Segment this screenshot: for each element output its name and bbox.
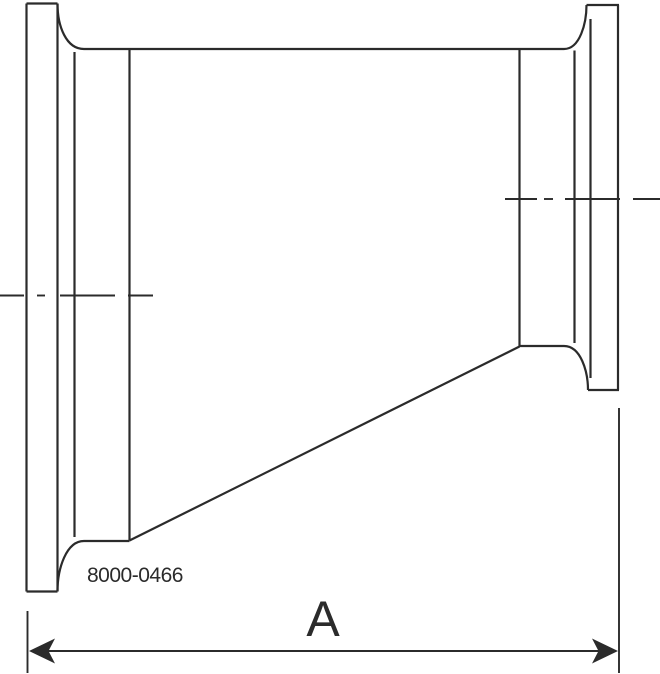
top-left-fillet <box>58 4 85 50</box>
port-centerlines <box>0 199 660 296</box>
part-number-label: 8000-0466 <box>87 564 183 587</box>
bottom-right-fillet <box>564 346 588 390</box>
cone-bottom-taper <box>130 347 520 541</box>
drawing-sheet: 8000-0466 A <box>0 0 660 674</box>
dimension-a-label: A <box>306 591 340 647</box>
top-right-fillet <box>564 5 587 49</box>
reducer-outline <box>27 4 620 592</box>
reducer-technical-drawing: 8000-0466 A <box>0 0 660 674</box>
bottom-left-fillet <box>58 541 85 592</box>
